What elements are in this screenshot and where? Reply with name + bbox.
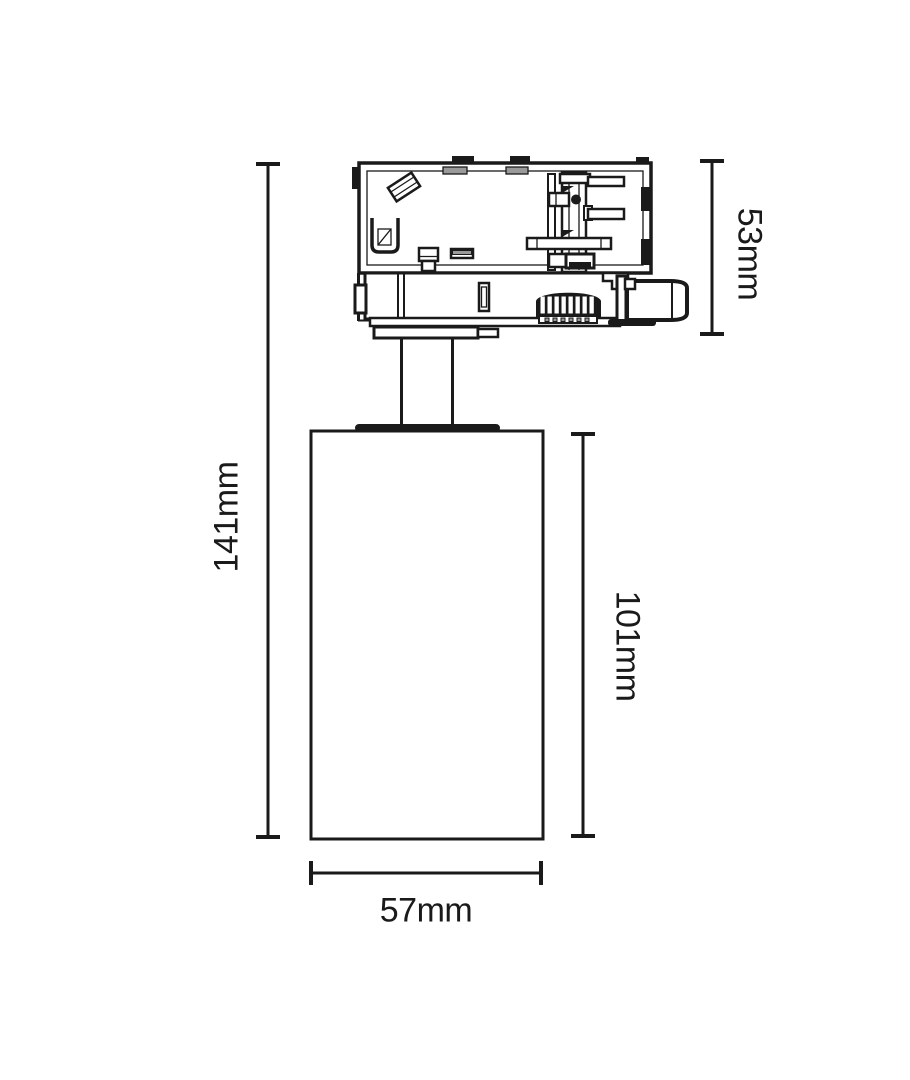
housing-top-tab [452, 156, 474, 164]
dimension-drawing-page: 141mm 53mm 101mm 57mm [0, 0, 910, 1080]
housing-left-tab [352, 167, 360, 189]
small-block [419, 248, 438, 261]
dimension-body-width-line [311, 861, 541, 885]
housing-right-bump [641, 239, 650, 265]
housing-top-tab [510, 156, 530, 164]
dimension-label-body-width: 57mm [380, 892, 472, 931]
contact-cross-bar [527, 238, 611, 249]
locking-lever [603, 273, 687, 326]
dimension-adapter-height-line [700, 161, 724, 334]
housing-right-bump [641, 187, 650, 211]
lamp-body [311, 431, 543, 839]
track-adapter [352, 156, 687, 338]
dimension-body-height-line [571, 434, 595, 836]
stem [402, 338, 453, 424]
housing-top-slot [443, 167, 467, 174]
contact-prong [588, 177, 624, 186]
adjustment-wheel [536, 293, 601, 323]
band-left-tab [355, 285, 366, 313]
mounting-plate [374, 327, 498, 338]
dimension-label-adapter-height: 53mm [730, 208, 769, 300]
housing-top-slot [506, 167, 528, 174]
contact-pivot-dot [571, 195, 581, 205]
dimension-overall-height-line [256, 164, 280, 837]
dimension-label-body-height: 101mm [608, 591, 647, 702]
contact-prong [588, 209, 624, 219]
housing-top-tab [636, 157, 649, 164]
dimension-label-overall-height: 141mm [208, 462, 247, 573]
